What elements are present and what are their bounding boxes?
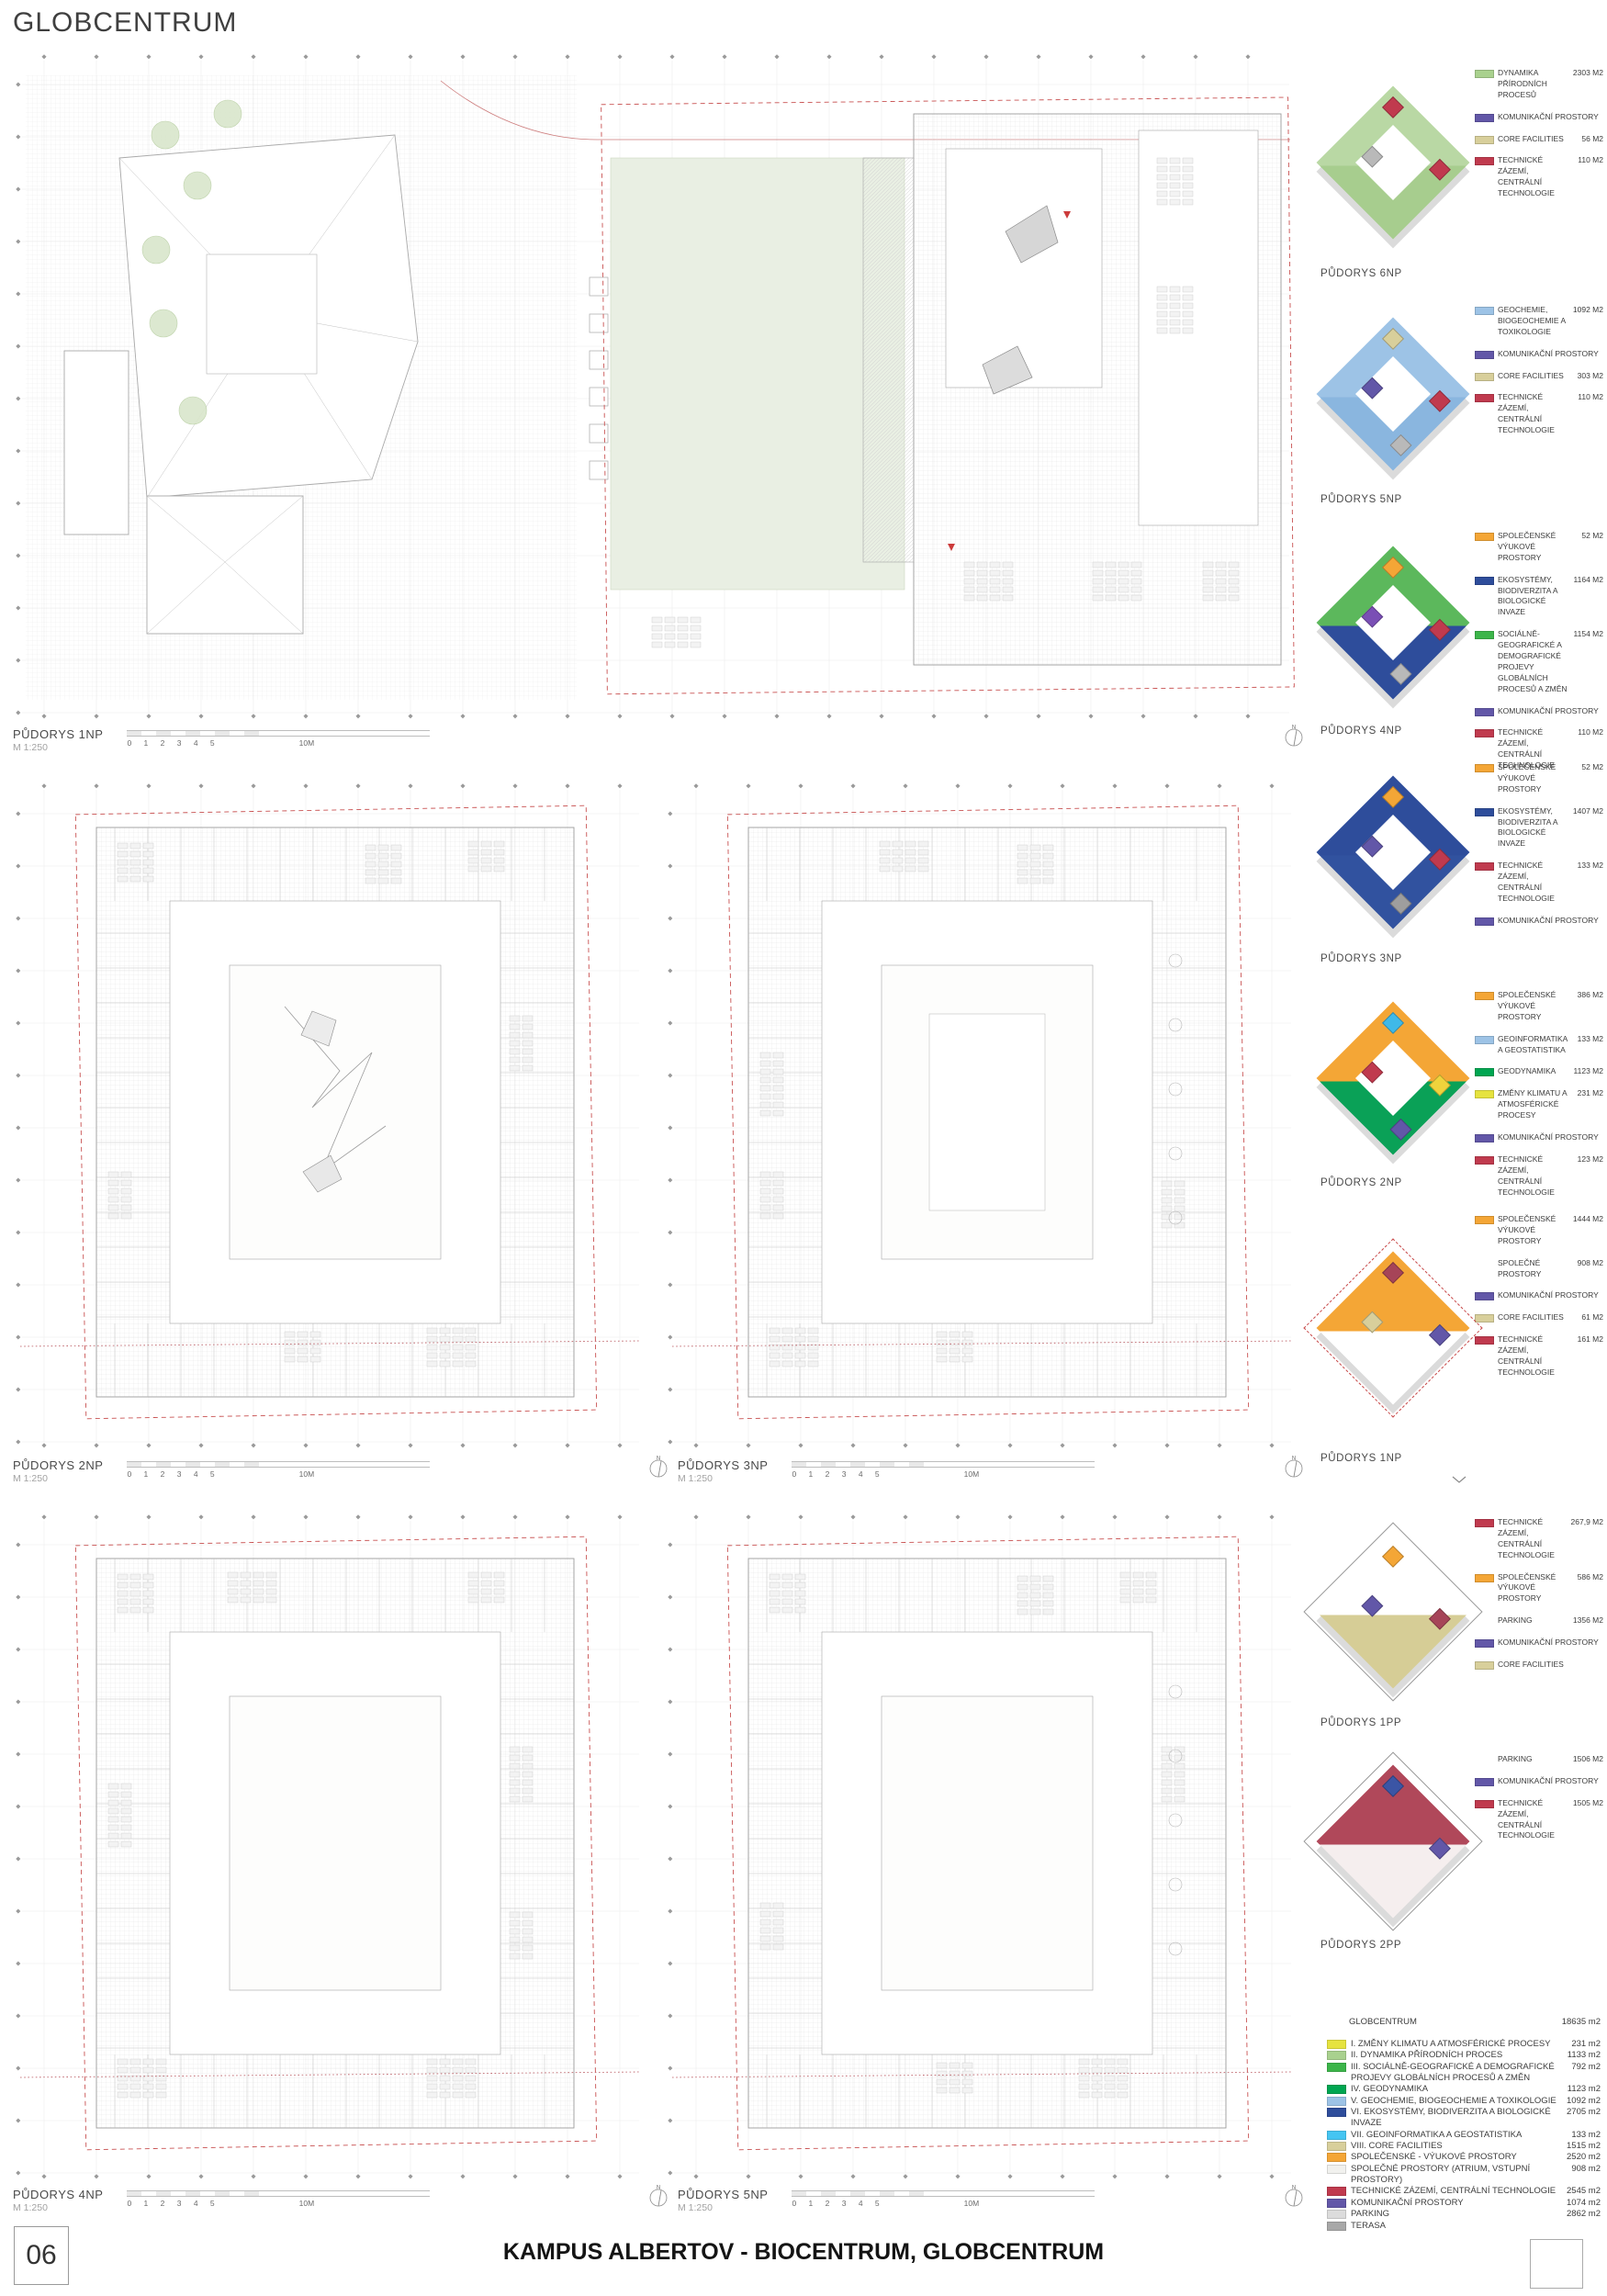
summary-label: III. SOCIÁLNĚ-GEOGRAFICKÉ A DEMOGRAFICKÉ… bbox=[1351, 2062, 1571, 2085]
axon-program-block bbox=[1382, 1546, 1404, 1568]
plan-caption-2np: PŮDORYS 2NP M 1:250 0 1 2 3 4 5 10M bbox=[13, 1458, 430, 1485]
summary-area-value: 133 m2 bbox=[1571, 2130, 1601, 2141]
legend-label: SPOLEČENSKÉ VÝUKOVÉ PROSTORY bbox=[1498, 990, 1578, 1023]
scale-bar-ticks: 0 1 2 3 4 5 bbox=[127, 738, 214, 748]
axon-floor-label: PŮDORYS 6NP bbox=[1320, 268, 1402, 279]
legend-area-value: 1154 m2 bbox=[1574, 629, 1603, 640]
plan-label: PŮDORYS 5NP bbox=[678, 2188, 768, 2202]
summary-color-chip bbox=[1327, 2153, 1346, 2162]
axon-program-block bbox=[1382, 557, 1404, 579]
legend-row: SPOLEČNÉ PROSTORY908 m2 bbox=[1475, 1258, 1603, 1280]
axon-program-block bbox=[1429, 1324, 1451, 1346]
axon-floor-label: PŮDORYS 5NP bbox=[1320, 494, 1402, 505]
axon-1np-shape bbox=[1317, 1252, 1470, 1405]
legend-row: GEOCHEMIE, BIOGEOCHEMIE A TOXIKOLOGIE109… bbox=[1475, 305, 1603, 338]
axon-2np-shape bbox=[1317, 1002, 1470, 1155]
scale-bar-end: 10M bbox=[299, 738, 315, 748]
legend-label: CORE FACILITIES bbox=[1498, 371, 1578, 382]
legend-color-chip bbox=[1475, 1068, 1494, 1076]
north-arrow-icon: N bbox=[1282, 2184, 1306, 2212]
legend-label: KOMUNIKAČNÍ PROSTORY bbox=[1498, 916, 1603, 927]
legend-color-chip bbox=[1475, 1661, 1494, 1670]
axon-program-block bbox=[1429, 1075, 1451, 1097]
scale-bar-ticks: 0 1 2 3 4 5 bbox=[127, 2199, 214, 2208]
summary-title: GLOBCENTRUM bbox=[1349, 2017, 1562, 2027]
north-arrow-icon: N bbox=[1282, 724, 1306, 752]
axon-3np-shape bbox=[1317, 776, 1470, 929]
axon-program-block bbox=[1361, 1311, 1383, 1334]
axon-4np-panel: SPOLEČENSKÉ VÝUKOVÉ PROSTORY52 m2EKOSYST… bbox=[1311, 507, 1607, 738]
summary-row: VII. GEOINFORMATIKA A GEOSTATISTIKA133 m… bbox=[1327, 2130, 1601, 2141]
legend-area-value: 52 m2 bbox=[1581, 762, 1603, 773]
summary-row: KOMUNIKAČNÍ PROSTORY1074 m2 bbox=[1327, 2198, 1601, 2209]
summary-row: SPOLEČNÉ PROSTORY (ATRIUM, VSTUPNÍ PROST… bbox=[1327, 2164, 1601, 2187]
scale-bar-end: 10M bbox=[964, 2199, 980, 2208]
legend-label: TECHNICKÉ ZÁZEMÍ, CENTRÁLNÍ TECHNOLOGIE bbox=[1498, 1517, 1571, 1561]
axon-floor-label: PŮDORYS 4NP bbox=[1320, 726, 1402, 737]
legend-label: SPOLEČNÉ PROSTORY bbox=[1498, 1258, 1578, 1280]
plan-caption-3np: PŮDORYS 3NP M 1:250 0 1 2 3 4 5 10M bbox=[678, 1458, 1095, 1485]
axon-2np-legend: SPOLEČENSKÉ VÝUKOVÉ PROSTORY386 m2GEOINF… bbox=[1475, 966, 1607, 1190]
axon-5np-shape bbox=[1317, 318, 1470, 471]
axon-6np-legend: DYNAMIKA PŘÍRODNÍCH PROCESŮ2303 m2KOMUNI… bbox=[1475, 44, 1607, 281]
legend-color-chip bbox=[1475, 1800, 1494, 1808]
legend-label: GEOCHEMIE, BIOGEOCHEMIE A TOXIKOLOGIE bbox=[1498, 305, 1573, 338]
scale-bar: 0 1 2 3 4 5 10M bbox=[792, 2188, 1095, 2208]
summary-area-value: 1074 m2 bbox=[1567, 2198, 1601, 2209]
legend-label: EKOSYSTÉMY, BIODIVERZITA A BIOLOGICKÉ IN… bbox=[1498, 575, 1574, 619]
legend-area-value: 1123 m2 bbox=[1574, 1066, 1603, 1077]
legend-area-value: 1506 m2 bbox=[1573, 1754, 1603, 1765]
legend-row: GEOINFORMATIKA A GEOSTATISTIKA133 m2 bbox=[1475, 1034, 1603, 1056]
legend-label: SPOLEČENSKÉ VÝUKOVÉ PROSTORY bbox=[1498, 1572, 1578, 1605]
axon-program-block bbox=[1429, 1608, 1451, 1630]
legend-label: SPOLEČENSKÉ VÝUKOVÉ PROSTORY bbox=[1498, 531, 1581, 564]
axon-program-block bbox=[1429, 849, 1451, 871]
axon-program-block bbox=[1429, 390, 1451, 412]
summary-label: TERASA bbox=[1351, 2221, 1601, 2232]
legend-color-chip bbox=[1475, 729, 1494, 737]
axon-4np-legend: SPOLEČENSKÉ VÝUKOVÉ PROSTORY52 m2EKOSYST… bbox=[1475, 507, 1607, 738]
summary-label: VIII. CORE FACILITIES bbox=[1351, 2141, 1567, 2152]
plan-caption-1np: PŮDORYS 1NP M 1:250 0 1 2 3 4 5 10M bbox=[13, 727, 430, 754]
legend-area-value: 586 m2 bbox=[1578, 1572, 1603, 1583]
axon-5np-diagram bbox=[1311, 281, 1475, 507]
summary-color-chip bbox=[1327, 2210, 1346, 2219]
legend-row: TECHNICKÉ ZÁZEMÍ, CENTRÁLNÍ TECHNOLOGIE1… bbox=[1475, 1334, 1603, 1379]
legend-color-chip bbox=[1475, 394, 1494, 402]
axon-2pp-panel: PARKING1506 m2KOMUNIKAČNÍ PROSTORYTECHNI… bbox=[1311, 1730, 1607, 1953]
svg-text:N: N bbox=[657, 1457, 660, 1462]
legend-row: KOMUNIKAČNÍ PROSTORY bbox=[1475, 1776, 1603, 1787]
legend-label: TECHNICKÉ ZÁZEMÍ, CENTRÁLNÍ TECHNOLOGIE bbox=[1498, 392, 1578, 436]
legend-label: CORE FACILITIES bbox=[1498, 1660, 1603, 1671]
axon-program-block bbox=[1382, 328, 1404, 350]
legend-label: KOMUNIKAČNÍ PROSTORY bbox=[1498, 1638, 1603, 1649]
legend-color-chip bbox=[1475, 307, 1494, 315]
axon-program-block bbox=[1429, 619, 1451, 641]
legend-color-chip bbox=[1475, 1216, 1494, 1224]
scale-bar-ticks: 0 1 2 3 4 5 bbox=[127, 1469, 214, 1479]
summary-color-chip bbox=[1327, 2142, 1346, 2151]
legend-color-chip bbox=[1475, 70, 1494, 78]
legend-label: CORE FACILITIES bbox=[1498, 1312, 1581, 1323]
summary-color-chip bbox=[1327, 2108, 1346, 2117]
axon-program-block bbox=[1382, 1262, 1404, 1284]
axon-floor-label: PŮDORYS 3NP bbox=[1320, 953, 1402, 964]
summary-row: IV. GEODYNAMIKA1123 m2 bbox=[1327, 2084, 1601, 2095]
program-summary-table: GLOBCENTRUM 18635 m2 I. ZMĚNY KLIMATU A … bbox=[1327, 2017, 1601, 2232]
scale-bar-end: 10M bbox=[299, 1469, 315, 1479]
legend-row: CORE FACILITIES56 m2 bbox=[1475, 134, 1603, 145]
axon-program-block bbox=[1389, 434, 1411, 456]
axon-floor-label: PŮDORYS 1PP bbox=[1320, 1717, 1401, 1728]
project-title: KAMPUS ALBERTOV - BIOCENTRUM, GLOBCENTRU… bbox=[0, 2239, 1607, 2266]
axon-4np-shape bbox=[1317, 546, 1470, 700]
legend-row: CORE FACILITIES303 m2 bbox=[1475, 371, 1603, 382]
axon-program-block bbox=[1382, 1012, 1404, 1034]
legend-color-chip bbox=[1475, 992, 1494, 1000]
summary-label: IV. GEODYNAMIKA bbox=[1351, 2084, 1568, 2095]
plan-scale: M 1:250 bbox=[678, 2202, 768, 2214]
summary-rows: I. ZMĚNY KLIMATU A ATMOSFÉRICKÉ PROCESY2… bbox=[1327, 2039, 1601, 2232]
summary-area-value: 1515 m2 bbox=[1567, 2141, 1601, 2152]
scale-bar-graphic bbox=[792, 1461, 1095, 1468]
axon-2pp-shape bbox=[1317, 1765, 1470, 1919]
summary-area-value: 2520 m2 bbox=[1567, 2152, 1601, 2163]
summary-area-value: 2545 m2 bbox=[1567, 2186, 1601, 2197]
axon-1np-panel: SPOLEČENSKÉ VÝUKOVÉ PROSTORY1444 m2SPOLE… bbox=[1311, 1190, 1607, 1466]
summary-label: SPOLEČENSKÉ - VÝUKOVÉ PROSTORY bbox=[1351, 2152, 1567, 2163]
legend-label: KOMUNIKAČNÍ PROSTORY bbox=[1498, 1132, 1603, 1143]
axon-3np-diagram bbox=[1311, 738, 1475, 966]
north-arrow-icon: N bbox=[1282, 1455, 1306, 1483]
axon-program-block bbox=[1382, 1775, 1404, 1797]
legend-row: TECHNICKÉ ZÁZEMÍ, CENTRÁLNÍ TECHNOLOGIE1… bbox=[1475, 392, 1603, 436]
legend-area-value: 1407 m2 bbox=[1573, 806, 1603, 817]
legend-color-chip bbox=[1475, 1036, 1494, 1044]
floor-plan-2np-drawing bbox=[9, 777, 652, 1455]
legend-label: GEOINFORMATIKA A GEOSTATISTIKA bbox=[1498, 1034, 1578, 1056]
plan-label: PŮDORYS 1NP bbox=[13, 727, 103, 742]
scale-bar-graphic bbox=[792, 2190, 1095, 2197]
svg-text:N: N bbox=[1292, 2186, 1296, 2191]
legend-color-chip bbox=[1475, 114, 1494, 122]
legend-color-chip bbox=[1475, 708, 1494, 716]
summary-color-chip bbox=[1327, 2063, 1346, 2072]
axon-2np-diagram bbox=[1311, 966, 1475, 1190]
summary-color-chip bbox=[1327, 2051, 1346, 2060]
summary-total: 18635 m2 bbox=[1562, 2017, 1601, 2027]
summary-area-value: 1092 m2 bbox=[1567, 2096, 1601, 2107]
legend-label: KOMUNIKAČNÍ PROSTORY bbox=[1498, 349, 1603, 360]
legend-label: TECHNICKÉ ZÁZEMÍ, CENTRÁLNÍ TECHNOLOGIE bbox=[1498, 1798, 1573, 1842]
legend-color-chip bbox=[1475, 917, 1494, 926]
summary-label: TECHNICKÉ ZÁZEMÍ, CENTRÁLNÍ TECHNOLOGIE bbox=[1351, 2186, 1567, 2197]
legend-label: EKOSYSTÉMY, BIODIVERZITA A BIOLOGICKÉ IN… bbox=[1498, 806, 1573, 850]
summary-area-value: 2862 m2 bbox=[1567, 2209, 1601, 2220]
summary-row: TECHNICKÉ ZÁZEMÍ, CENTRÁLNÍ TECHNOLOGIE2… bbox=[1327, 2186, 1601, 2197]
axon-5np-legend: GEOCHEMIE, BIOGEOCHEMIE A TOXIKOLOGIE109… bbox=[1475, 281, 1607, 507]
axon-program-block bbox=[1389, 663, 1411, 685]
legend-label: TECHNICKÉ ZÁZEMÍ, CENTRÁLNÍ TECHNOLOGIE bbox=[1498, 861, 1578, 905]
legend-row: PARKING1356 m2 bbox=[1475, 1615, 1603, 1626]
summary-row: II. DYNAMIKA PŘÍRODNÍCH PROCES1133 m2 bbox=[1327, 2050, 1601, 2061]
legend-label: GEODYNAMIKA bbox=[1498, 1066, 1574, 1077]
legend-area-value: 61 m2 bbox=[1581, 1312, 1603, 1323]
legend-label: KOMUNIKAČNÍ PROSTORY bbox=[1498, 1290, 1603, 1301]
scale-bar-end: 10M bbox=[299, 2199, 315, 2208]
axon-1pp-diagram bbox=[1311, 1493, 1475, 1730]
summary-color-chip bbox=[1327, 2199, 1346, 2208]
summary-label: SPOLEČNÉ PROSTORY (ATRIUM, VSTUPNÍ PROST… bbox=[1351, 2164, 1571, 2187]
legend-color-chip bbox=[1475, 1156, 1494, 1165]
axon-5np-panel: GEOCHEMIE, BIOGEOCHEMIE A TOXIKOLOGIE109… bbox=[1311, 281, 1607, 507]
legend-color-chip bbox=[1475, 631, 1494, 639]
summary-color-chip bbox=[1327, 2222, 1346, 2231]
axon-6np-panel: DYNAMIKA PŘÍRODNÍCH PROCESŮ2303 m2KOMUNI… bbox=[1311, 44, 1607, 281]
legend-area-value: 386 m2 bbox=[1578, 990, 1603, 1001]
scale-bar-graphic bbox=[127, 1461, 430, 1468]
legend-row: GEODYNAMIKA1123 m2 bbox=[1475, 1066, 1603, 1077]
legend-area-value: 123 m2 bbox=[1578, 1154, 1603, 1165]
summary-color-chip bbox=[1327, 2187, 1346, 2196]
scale-bar-ticks: 0 1 2 3 4 5 bbox=[792, 1469, 879, 1479]
summary-label: V. GEOCHEMIE, BIOGEOCHEMIE A TOXIKOLOGIE bbox=[1351, 2096, 1567, 2107]
legend-label: SPOLEČENSKÉ VÝUKOVÉ PROSTORY bbox=[1498, 1214, 1573, 1247]
legend-row: EKOSYSTÉMY, BIODIVERZITA A BIOLOGICKÉ IN… bbox=[1475, 806, 1603, 850]
legend-area-value: 133 m2 bbox=[1578, 861, 1603, 872]
legend-area-value: 1164 m2 bbox=[1574, 575, 1603, 586]
axon-1np-legend: SPOLEČENSKÉ VÝUKOVÉ PROSTORY1444 m2SPOLE… bbox=[1475, 1190, 1607, 1466]
summary-row: III. SOCIÁLNĚ-GEOGRAFICKÉ A DEMOGRAFICKÉ… bbox=[1327, 2062, 1601, 2085]
axon-program-block bbox=[1389, 1119, 1411, 1141]
legend-row: CORE FACILITIES61 m2 bbox=[1475, 1312, 1603, 1323]
legend-row: KOMUNIKAČNÍ PROSTORY bbox=[1475, 1132, 1603, 1143]
axon-program-block bbox=[1429, 159, 1451, 181]
plan-scale: M 1:250 bbox=[678, 1473, 768, 1485]
summary-label: II. DYNAMIKA PŘÍRODNÍCH PROCES bbox=[1351, 2050, 1568, 2061]
summary-area-value: 1123 m2 bbox=[1568, 2084, 1601, 2095]
legend-color-chip bbox=[1475, 1574, 1494, 1582]
legend-area-value: 231 m2 bbox=[1578, 1088, 1603, 1099]
legend-area-value: 110 m2 bbox=[1578, 727, 1603, 738]
axon-4np-diagram bbox=[1311, 507, 1475, 738]
legend-color-chip bbox=[1475, 533, 1494, 541]
site-plan-1np-drawing bbox=[9, 48, 1302, 726]
legend-color-chip bbox=[1475, 1292, 1494, 1300]
summary-row: V. GEOCHEMIE, BIOGEOCHEMIE A TOXIKOLOGIE… bbox=[1327, 2096, 1601, 2107]
plan-caption-4np: PŮDORYS 4NP M 1:250 0 1 2 3 4 5 10M bbox=[13, 2188, 430, 2214]
legend-row: TECHNICKÉ ZÁZEMÍ, CENTRÁLNÍ TECHNOLOGIE1… bbox=[1475, 861, 1603, 905]
plan-scale: M 1:250 bbox=[13, 1473, 103, 1485]
summary-label: KOMUNIKAČNÍ PROSTORY bbox=[1351, 2198, 1567, 2209]
summary-color-chip bbox=[1327, 2040, 1346, 2049]
scale-bar-ticks: 0 1 2 3 4 5 bbox=[792, 2199, 879, 2208]
legend-area-value: 267,9 m2 bbox=[1571, 1517, 1603, 1528]
floor-plan-4np-drawing bbox=[9, 1508, 652, 2186]
footer-empty-box bbox=[1530, 2239, 1583, 2289]
plan-caption-5np: PŮDORYS 5NP M 1:250 0 1 2 3 4 5 10M bbox=[678, 2188, 1095, 2214]
axon-6np-shape bbox=[1317, 86, 1470, 240]
svg-text:N: N bbox=[1292, 1457, 1296, 1462]
legend-row: KOMUNIKAČNÍ PROSTORY bbox=[1475, 706, 1603, 717]
summary-header: GLOBCENTRUM 18635 m2 bbox=[1349, 2017, 1601, 2027]
legend-area-value: 110 m2 bbox=[1578, 392, 1603, 403]
legend-label: CORE FACILITIES bbox=[1498, 134, 1581, 145]
legend-area-value: 1356 m2 bbox=[1573, 1615, 1603, 1626]
axon-1pp-shape bbox=[1317, 1536, 1470, 1689]
legend-row: ZMĚNY KLIMATU A ATMOSFÉRICKÉ PROCESY231 … bbox=[1475, 1088, 1603, 1121]
summary-area-value: 2705 m2 bbox=[1567, 2107, 1601, 2118]
axon-program-block bbox=[1429, 1838, 1451, 1860]
legend-color-chip bbox=[1475, 1336, 1494, 1345]
legend-row: SPOLEČENSKÉ VÝUKOVÉ PROSTORY1444 m2 bbox=[1475, 1214, 1603, 1247]
axon-program-block bbox=[1361, 1595, 1383, 1617]
legend-color-chip bbox=[1475, 1090, 1494, 1098]
legend-label: SOCIÁLNĚ-GEOGRAFICKÉ A DEMOGRAFICKÉ PROJ… bbox=[1498, 629, 1574, 694]
legend-row: KOMUNIKAČNÍ PROSTORY bbox=[1475, 349, 1603, 360]
legend-row: SPOLEČENSKÉ VÝUKOVÉ PROSTORY52 m2 bbox=[1475, 531, 1603, 564]
summary-row: I. ZMĚNY KLIMATU A ATMOSFÉRICKÉ PROCESY2… bbox=[1327, 2039, 1601, 2050]
summary-row: PARKING2862 m2 bbox=[1327, 2209, 1601, 2220]
legend-label: KOMUNIKAČNÍ PROSTORY bbox=[1498, 706, 1603, 717]
axon-program-block bbox=[1382, 96, 1404, 118]
legend-label: KOMUNIKAČNÍ PROSTORY bbox=[1498, 1776, 1603, 1787]
legend-area-value: 1505 m2 bbox=[1573, 1798, 1603, 1809]
legend-color-chip bbox=[1475, 862, 1494, 871]
legend-label: KOMUNIKAČNÍ PROSTORY bbox=[1498, 112, 1603, 123]
page-title: GLOBCENTRUM bbox=[13, 7, 237, 39]
legend-row: KOMUNIKAČNÍ PROSTORY bbox=[1475, 112, 1603, 123]
legend-area-value: 133 m2 bbox=[1578, 1034, 1603, 1045]
legend-color-chip bbox=[1475, 1134, 1494, 1142]
summary-area-value: 792 m2 bbox=[1571, 2062, 1601, 2073]
axon-program-block bbox=[1382, 786, 1404, 808]
floor-plan-5np-drawing bbox=[661, 1508, 1304, 2186]
legend-area-value: 110 m2 bbox=[1578, 155, 1603, 166]
plan-label: PŮDORYS 3NP bbox=[678, 1458, 768, 1473]
legend-color-chip bbox=[1475, 373, 1494, 381]
summary-color-chip bbox=[1327, 2097, 1346, 2106]
plan-label: PŮDORYS 2NP bbox=[13, 1458, 103, 1473]
legend-label: SPOLEČENSKÉ VÝUKOVÉ PROSTORY bbox=[1498, 762, 1581, 795]
legend-row: TECHNICKÉ ZÁZEMÍ, CENTRÁLNÍ TECHNOLOGIE1… bbox=[1475, 1798, 1603, 1842]
legend-color-chip bbox=[1475, 1778, 1494, 1786]
summary-color-chip bbox=[1327, 2165, 1346, 2174]
axon-3np-panel: SPOLEČENSKÉ VÝUKOVÉ PROSTORY52 m2EKOSYST… bbox=[1311, 738, 1607, 966]
summary-row: TERASA bbox=[1327, 2221, 1601, 2232]
axon-1np-diagram bbox=[1311, 1190, 1475, 1466]
scale-bar-graphic bbox=[127, 2190, 430, 2197]
north-arrow-icon: N bbox=[646, 2184, 670, 2212]
summary-area-value: 908 m2 bbox=[1571, 2164, 1601, 2175]
axon-1pp-legend: TECHNICKÉ ZÁZEMÍ, CENTRÁLNÍ TECHNOLOGIE2… bbox=[1475, 1493, 1607, 1730]
legend-row: EKOSYSTÉMY, BIODIVERZITA A BIOLOGICKÉ IN… bbox=[1475, 575, 1603, 619]
legend-color-chip bbox=[1475, 808, 1494, 816]
axon-floor-label: PŮDORYS 2NP bbox=[1320, 1177, 1402, 1188]
summary-color-chip bbox=[1327, 2085, 1346, 2094]
scale-bar-end: 10M bbox=[964, 1469, 980, 1479]
legend-color-chip bbox=[1475, 1639, 1494, 1648]
axon-floor-label: PŮDORYS 1NP bbox=[1320, 1453, 1402, 1464]
floor-plan-3np-drawing bbox=[661, 777, 1304, 1455]
legend-row: TECHNICKÉ ZÁZEMÍ, CENTRÁLNÍ TECHNOLOGIE2… bbox=[1475, 1517, 1603, 1561]
axon-diagram-column: DYNAMIKA PŘÍRODNÍCH PROCESŮ2303 m2KOMUNI… bbox=[1311, 44, 1607, 1953]
axon-2pp-legend: PARKING1506 m2KOMUNIKAČNÍ PROSTORYTECHNI… bbox=[1475, 1730, 1607, 1953]
scale-bar: 0 1 2 3 4 5 10M bbox=[127, 727, 430, 748]
chevron-down-icon bbox=[1311, 1466, 1607, 1493]
legend-area-value: 161 m2 bbox=[1578, 1334, 1603, 1345]
legend-color-chip bbox=[1475, 1314, 1494, 1322]
legend-row: KOMUNIKAČNÍ PROSTORY bbox=[1475, 1638, 1603, 1649]
scale-bar: 0 1 2 3 4 5 10M bbox=[127, 2188, 430, 2208]
scale-bar: 0 1 2 3 4 5 10M bbox=[127, 1458, 430, 1479]
axon-1pp-panel: TECHNICKÉ ZÁZEMÍ, CENTRÁLNÍ TECHNOLOGIE2… bbox=[1311, 1493, 1607, 1730]
legend-label: TECHNICKÉ ZÁZEMÍ, CENTRÁLNÍ TECHNOLOGIE bbox=[1498, 155, 1578, 199]
legend-color-chip bbox=[1475, 351, 1494, 359]
legend-label: PARKING bbox=[1498, 1754, 1573, 1765]
legend-row: KOMUNIKAČNÍ PROSTORY bbox=[1475, 1290, 1603, 1301]
legend-area-value: 56 m2 bbox=[1581, 134, 1603, 145]
summary-label: I. ZMĚNY KLIMATU A ATMOSFÉRICKÉ PROCESY bbox=[1351, 2039, 1571, 2050]
summary-row: VIII. CORE FACILITIES1515 m2 bbox=[1327, 2141, 1601, 2152]
summary-area-value: 231 m2 bbox=[1571, 2039, 1601, 2050]
scale-bar-graphic bbox=[127, 730, 430, 737]
summary-label: VI. EKOSYSTÉMY, BIODIVERZITA A BIOLOGICK… bbox=[1351, 2107, 1567, 2130]
legend-label: ZMĚNY KLIMATU A ATMOSFÉRICKÉ PROCESY bbox=[1498, 1088, 1578, 1121]
legend-area-value: 303 m2 bbox=[1578, 371, 1603, 382]
plan-label: PŮDORYS 4NP bbox=[13, 2188, 103, 2202]
legend-row: DYNAMIKA PŘÍRODNÍCH PROCESŮ2303 m2 bbox=[1475, 68, 1603, 101]
legend-row: SPOLEČENSKÉ VÝUKOVÉ PROSTORY386 m2 bbox=[1475, 990, 1603, 1023]
legend-row: SPOLEČENSKÉ VÝUKOVÉ PROSTORY586 m2 bbox=[1475, 1572, 1603, 1605]
axon-3np-legend: SPOLEČENSKÉ VÝUKOVÉ PROSTORY52 m2EKOSYST… bbox=[1475, 738, 1607, 966]
legend-label: PARKING bbox=[1498, 1615, 1573, 1626]
legend-color-chip bbox=[1475, 577, 1494, 585]
summary-row: SPOLEČENSKÉ - VÝUKOVÉ PROSTORY2520 m2 bbox=[1327, 2152, 1601, 2163]
legend-row: KOMUNIKAČNÍ PROSTORY bbox=[1475, 916, 1603, 927]
north-arrow-icon: N bbox=[646, 1455, 670, 1483]
legend-area-value: 1444 m2 bbox=[1573, 1214, 1603, 1225]
legend-color-chip bbox=[1475, 764, 1494, 772]
summary-label: PARKING bbox=[1351, 2209, 1567, 2220]
axon-2np-panel: SPOLEČENSKÉ VÝUKOVÉ PROSTORY386 m2GEOINF… bbox=[1311, 966, 1607, 1190]
legend-area-value: 908 m2 bbox=[1578, 1258, 1603, 1269]
legend-row: PARKING1506 m2 bbox=[1475, 1754, 1603, 1765]
legend-area-value: 1092 m2 bbox=[1573, 305, 1603, 316]
legend-row: TECHNICKÉ ZÁZEMÍ, CENTRÁLNÍ TECHNOLOGIE1… bbox=[1475, 155, 1603, 199]
axon-2pp-diagram bbox=[1311, 1730, 1475, 1953]
legend-label: TECHNICKÉ ZÁZEMÍ, CENTRÁLNÍ TECHNOLOGIE bbox=[1498, 1334, 1578, 1379]
legend-row: CORE FACILITIES bbox=[1475, 1660, 1603, 1671]
plan-scale: M 1:250 bbox=[13, 742, 103, 754]
summary-row: VI. EKOSYSTÉMY, BIODIVERZITA A BIOLOGICK… bbox=[1327, 2107, 1601, 2130]
legend-area-value: 52 m2 bbox=[1581, 531, 1603, 542]
svg-text:N: N bbox=[1292, 726, 1296, 731]
legend-label: DYNAMIKA PŘÍRODNÍCH PROCESŮ bbox=[1498, 68, 1573, 101]
legend-row: SPOLEČENSKÉ VÝUKOVÉ PROSTORY52 m2 bbox=[1475, 762, 1603, 795]
legend-color-chip bbox=[1475, 157, 1494, 165]
legend-color-chip bbox=[1475, 136, 1494, 144]
summary-area-value: 1133 m2 bbox=[1568, 2050, 1601, 2061]
presentation-sheet: GLOBCENTRUM PŮDORYS 1NP M 1:250 0 1 2 3 … bbox=[0, 0, 1607, 2296]
axon-program-block bbox=[1389, 893, 1411, 915]
summary-color-chip bbox=[1327, 2131, 1346, 2140]
summary-label: VII. GEOINFORMATIKA A GEOSTATISTIKA bbox=[1351, 2130, 1571, 2141]
legend-color-chip bbox=[1475, 1519, 1494, 1527]
scale-bar: 0 1 2 3 4 5 10M bbox=[792, 1458, 1095, 1479]
